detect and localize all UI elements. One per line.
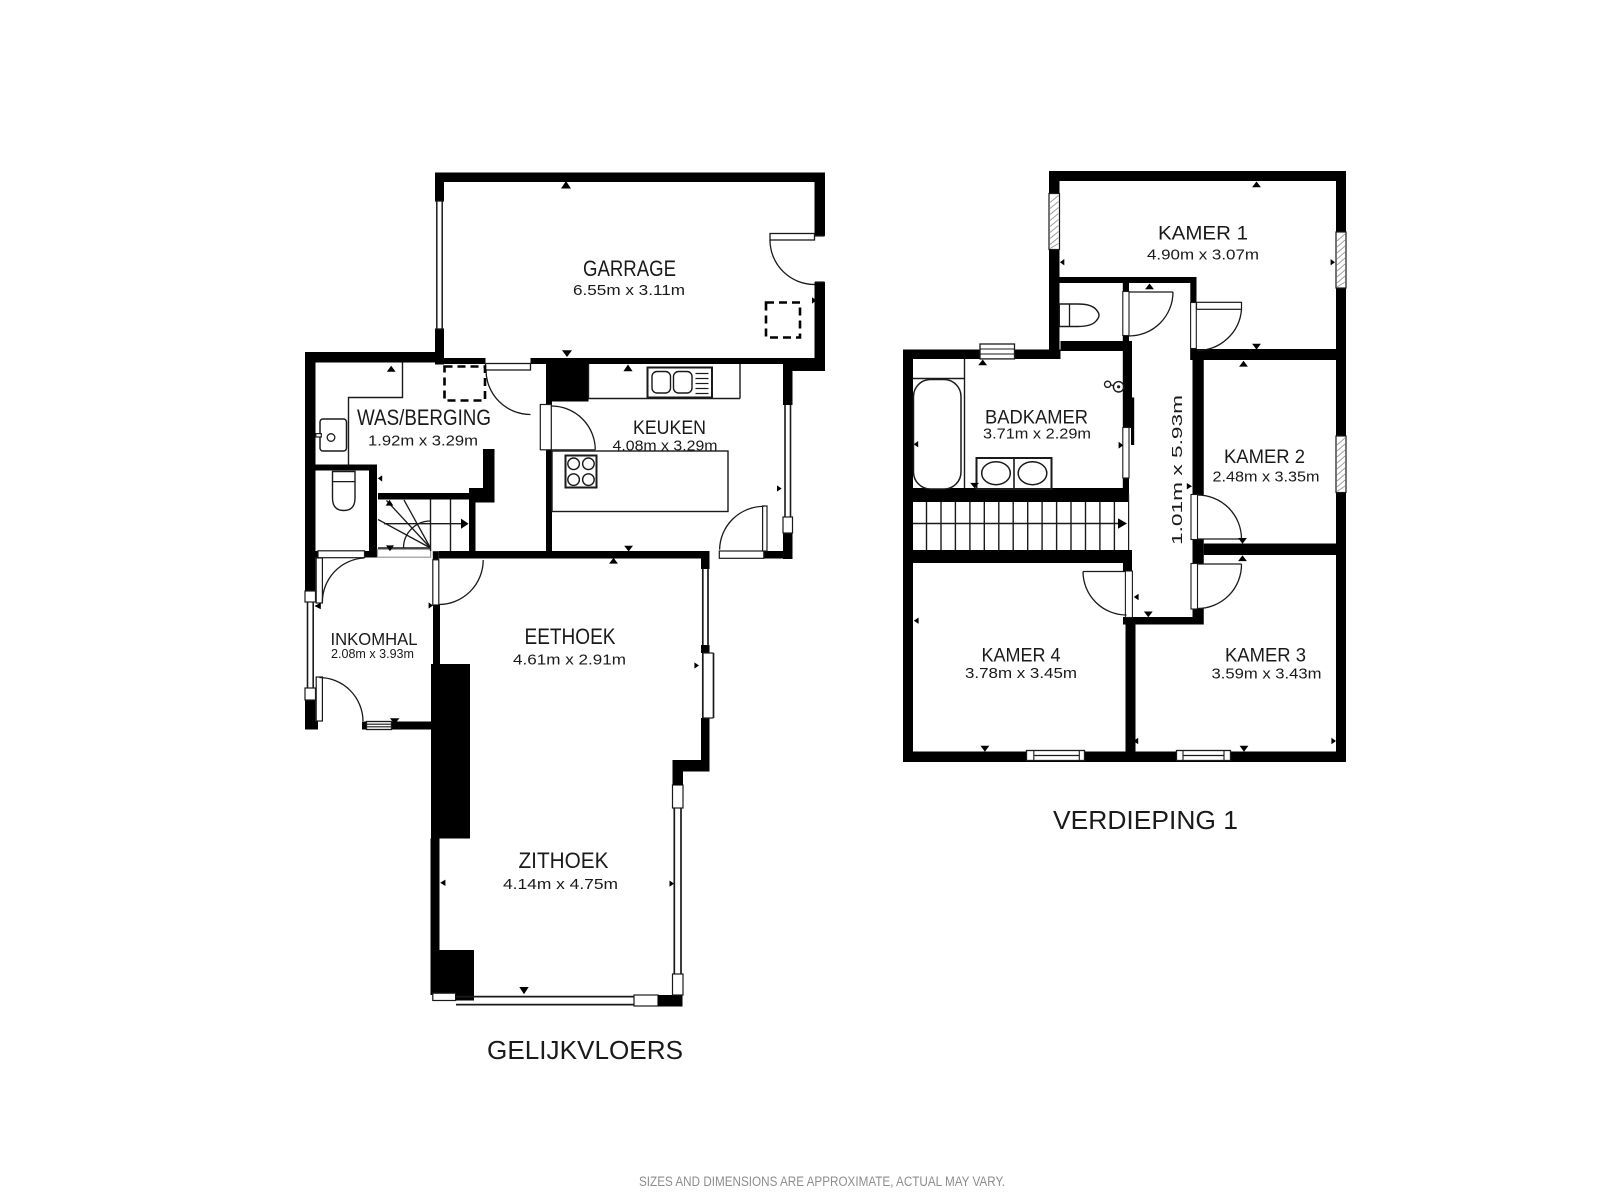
svg-text:SIZES AND DIMENSIONS ARE APPRO: SIZES AND DIMENSIONS ARE APPROXIMATE, AC… bbox=[639, 1174, 1005, 1189]
svg-text:KAMER 3: KAMER 3 bbox=[1225, 646, 1306, 667]
svg-text:2.08m x 3.93m: 2.08m x 3.93m bbox=[331, 646, 414, 661]
svg-text:GELIJKVLOERS: GELIJKVLOERS bbox=[487, 1035, 683, 1065]
svg-text:4.14m x 4.75m: 4.14m x 4.75m bbox=[503, 876, 618, 893]
svg-text:VERDIEPING 1: VERDIEPING 1 bbox=[1053, 805, 1238, 835]
svg-text:KEUKEN: KEUKEN bbox=[633, 418, 706, 439]
svg-text:KAMER 1: KAMER 1 bbox=[1158, 224, 1248, 245]
svg-text:1.92m x 3.29m: 1.92m x 3.29m bbox=[368, 433, 478, 450]
svg-text:KAMER 2: KAMER 2 bbox=[1224, 447, 1305, 468]
svg-text:EETHOEK: EETHOEK bbox=[525, 624, 616, 649]
svg-text:2.48m x 3.35m: 2.48m x 3.35m bbox=[1213, 469, 1320, 486]
svg-text:GARRAGE: GARRAGE bbox=[583, 256, 676, 281]
svg-text:WAS/BERGING: WAS/BERGING bbox=[357, 405, 491, 430]
svg-text:ZITHOEK: ZITHOEK bbox=[519, 848, 609, 873]
svg-text:4.61m x 2.91m: 4.61m x 2.91m bbox=[513, 652, 626, 669]
svg-text:3.78m x 3.45m: 3.78m x 3.45m bbox=[965, 665, 1077, 682]
svg-text:6.55m x 3.11m: 6.55m x 3.11m bbox=[573, 282, 685, 299]
svg-text:KAMER 4: KAMER 4 bbox=[982, 646, 1061, 667]
svg-text:4.08m x 3.29m: 4.08m x 3.29m bbox=[613, 438, 718, 455]
svg-text:3.59m x 3.43m: 3.59m x 3.43m bbox=[1212, 666, 1322, 683]
svg-text:1.01m x 5.93m: 1.01m x 5.93m bbox=[1169, 395, 1186, 545]
svg-text:3.71m x 2.29m: 3.71m x 2.29m bbox=[983, 426, 1091, 443]
svg-text:4.90m x 3.07m: 4.90m x 3.07m bbox=[1147, 247, 1259, 264]
